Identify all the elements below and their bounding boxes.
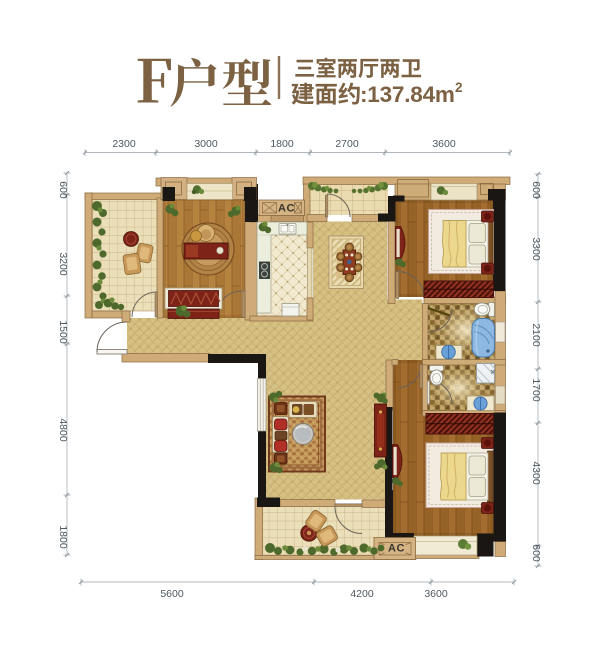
svg-text:3200: 3200: [57, 252, 69, 276]
svg-text:3600: 3600: [424, 588, 448, 600]
svg-text:2100: 2100: [530, 323, 542, 347]
svg-text:2300: 2300: [112, 138, 136, 150]
svg-text:2700: 2700: [335, 138, 359, 150]
svg-text:3300: 3300: [530, 237, 542, 261]
svg-text:1800: 1800: [270, 138, 294, 150]
svg-text::137.84m: :137.84m: [360, 82, 455, 107]
svg-text:1700: 1700: [530, 378, 542, 402]
svg-text:4300: 4300: [530, 461, 542, 485]
svg-text:600: 600: [530, 544, 542, 562]
svg-text:2: 2: [455, 80, 463, 95]
svg-text:600: 600: [530, 181, 542, 199]
svg-text:3600: 3600: [432, 138, 456, 150]
svg-text:5600: 5600: [160, 588, 184, 600]
svg-text:AC: AC: [278, 203, 295, 215]
svg-text:AC: AC: [388, 543, 405, 555]
svg-text:4800: 4800: [57, 418, 69, 442]
svg-text:4200: 4200: [350, 588, 374, 600]
svg-text:600: 600: [57, 181, 69, 199]
svg-text:3000: 3000: [194, 138, 218, 150]
svg-text:1800: 1800: [57, 525, 69, 549]
svg-text:1500: 1500: [57, 320, 69, 344]
